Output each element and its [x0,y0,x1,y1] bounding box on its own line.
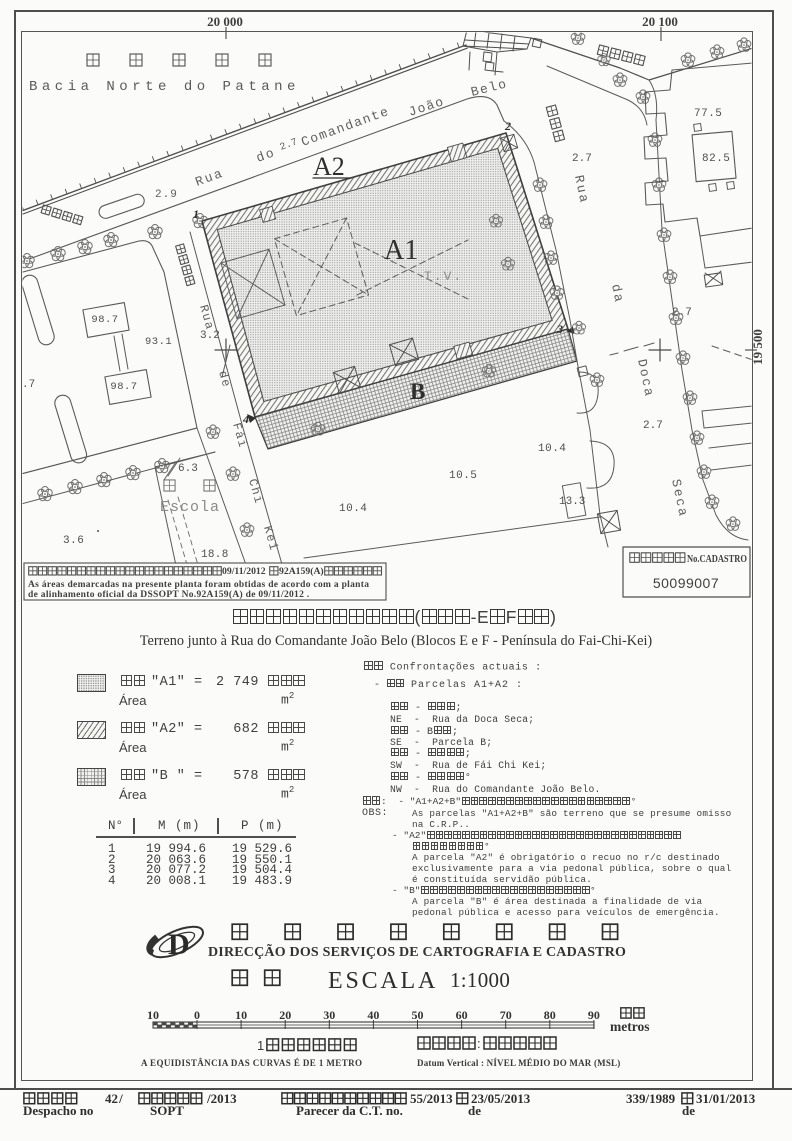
svg-text:10: 10 [147,1008,159,1022]
svg-text:ESCALA: ESCALA [328,968,438,994]
svg-text:1:1000: 1:1000 [450,968,510,992]
svg-text:de: de [682,1103,695,1118]
svg-text:30: 30 [323,1008,335,1022]
svg-text:31/01/2013: 31/01/2013 [696,1091,756,1106]
svg-text:90: 90 [588,1008,600,1022]
svg-text:Parecer da C.T. no.: Parecer da C.T. no. [296,1103,403,1118]
svg-text:de: de [468,1103,481,1118]
svg-text:80: 80 [544,1008,556,1022]
svg-text:40: 40 [367,1008,379,1022]
svg-text:D: D [168,928,190,961]
svg-text:A EQUIDISTÂNCIA DAS CURVAS É D: A EQUIDISTÂNCIA DAS CURVAS É DE 1 METRO [141,1058,362,1068]
svg-text:1: 1 [257,1038,264,1053]
svg-text:metros: metros [610,1019,650,1034]
svg-text:SOPT: SOPT [150,1103,184,1118]
svg-text:50: 50 [412,1008,424,1022]
svg-text:Datum Vertical : NÍVEL MÉDIO D: Datum Vertical : NÍVEL MÉDIO DO MAR (MSL… [417,1058,620,1068]
svg-text:20: 20 [279,1008,291,1022]
svg-text:Despacho no: Despacho no [23,1103,93,1118]
svg-text:DIRECÇÃO DOS SERVIÇOS DE CARTO: DIRECÇÃO DOS SERVIÇOS DE CARTOGRAFIA E C… [208,942,626,960]
svg-text:/2013: /2013 [206,1091,237,1106]
svg-text:42 /: 42 / [105,1091,123,1106]
svg-text:0: 0 [194,1008,200,1022]
svg-text:339/1989: 339/1989 [626,1091,676,1106]
svg-text:55/2013: 55/2013 [410,1091,453,1106]
svg-text::: : [477,1036,481,1051]
svg-text:60: 60 [456,1008,468,1022]
svg-text:10: 10 [235,1008,247,1022]
svg-text:70: 70 [500,1008,512,1022]
